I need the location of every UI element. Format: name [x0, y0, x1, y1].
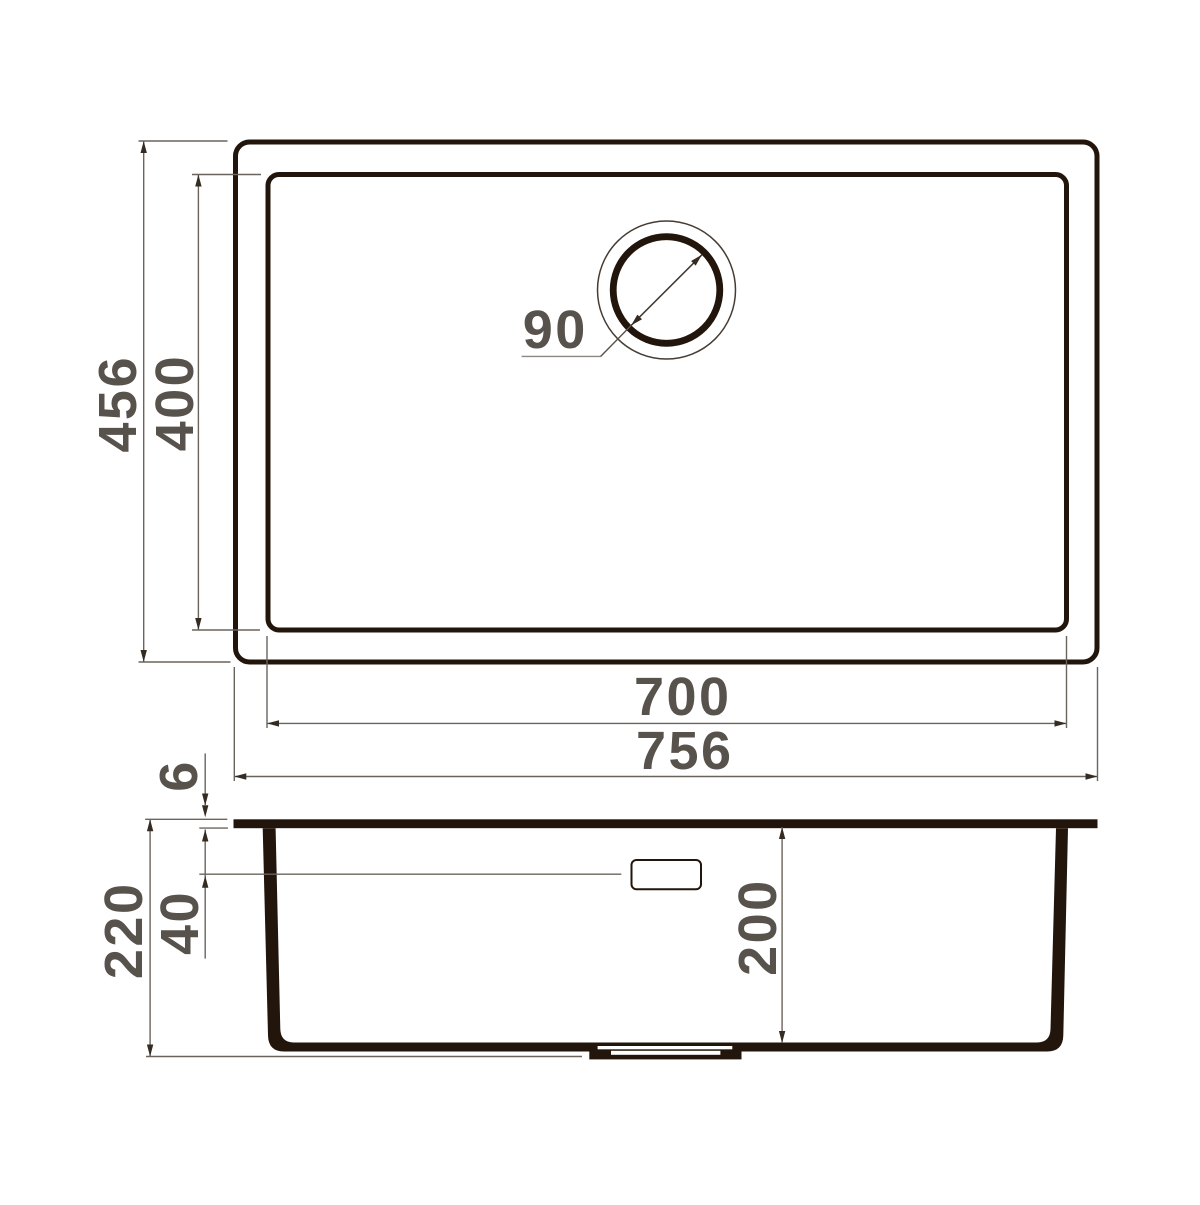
svg-text:90: 90	[523, 300, 588, 360]
svg-text:6: 6	[149, 759, 209, 792]
svg-text:756: 756	[636, 721, 734, 781]
svg-text:456: 456	[88, 355, 148, 453]
svg-text:220: 220	[94, 881, 154, 979]
svg-text:700: 700	[634, 667, 732, 727]
svg-text:40: 40	[150, 890, 210, 955]
svg-text:400: 400	[145, 354, 205, 452]
svg-text:200: 200	[728, 878, 788, 976]
